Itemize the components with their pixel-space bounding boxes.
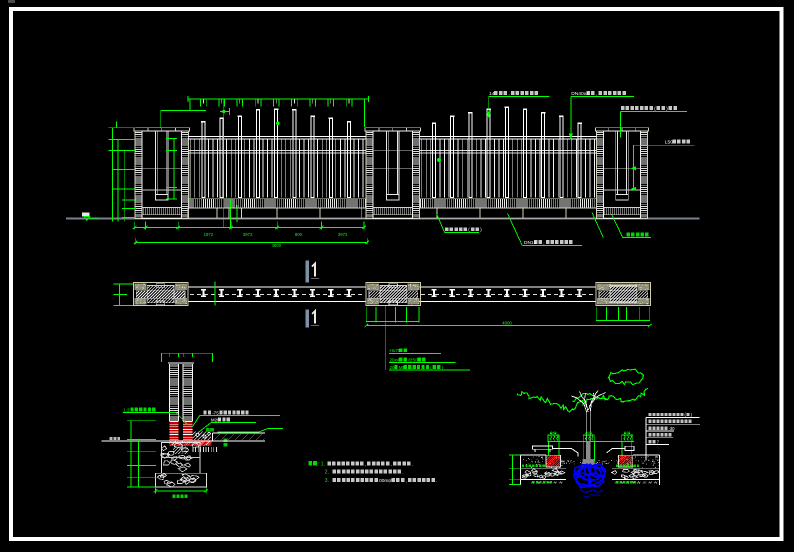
svg-text:-30: -30 (669, 426, 676, 431)
svg-text:1:2: 1:2 (123, 407, 130, 412)
svg-text:00mm: 00mm (379, 478, 392, 484)
svg-text:: 1.: : 1. (318, 461, 325, 467)
svg-text:20: 20 (390, 365, 396, 370)
svg-text:3.: 3. (325, 478, 329, 484)
svg-text:,: , (365, 462, 366, 467)
svg-text:3972: 3972 (243, 232, 253, 237)
svg-text:4800: 4800 (502, 321, 512, 326)
svg-text:,: , (391, 462, 392, 467)
svg-text:,: , (389, 479, 390, 484)
svg-text:20x4: 20x4 (390, 357, 400, 362)
svg-text:L50: L50 (665, 139, 673, 145)
svg-text:.: . (436, 479, 437, 484)
svg-text:3972: 3972 (338, 232, 348, 237)
svg-text:-75: -75 (212, 410, 219, 415)
svg-text:.: . (412, 462, 413, 467)
svg-text:040: 040 (586, 431, 592, 435)
svg-text:.: . (402, 471, 403, 476)
svg-text:040: 040 (551, 431, 557, 435)
svg-text:4800: 4800 (272, 243, 282, 248)
svg-text:040: 040 (624, 431, 630, 435)
svg-text:,: , (406, 479, 407, 484)
svg-text:2.: 2. (325, 470, 329, 476)
svg-text:800: 800 (295, 232, 303, 237)
svg-text:1972: 1972 (204, 232, 214, 237)
